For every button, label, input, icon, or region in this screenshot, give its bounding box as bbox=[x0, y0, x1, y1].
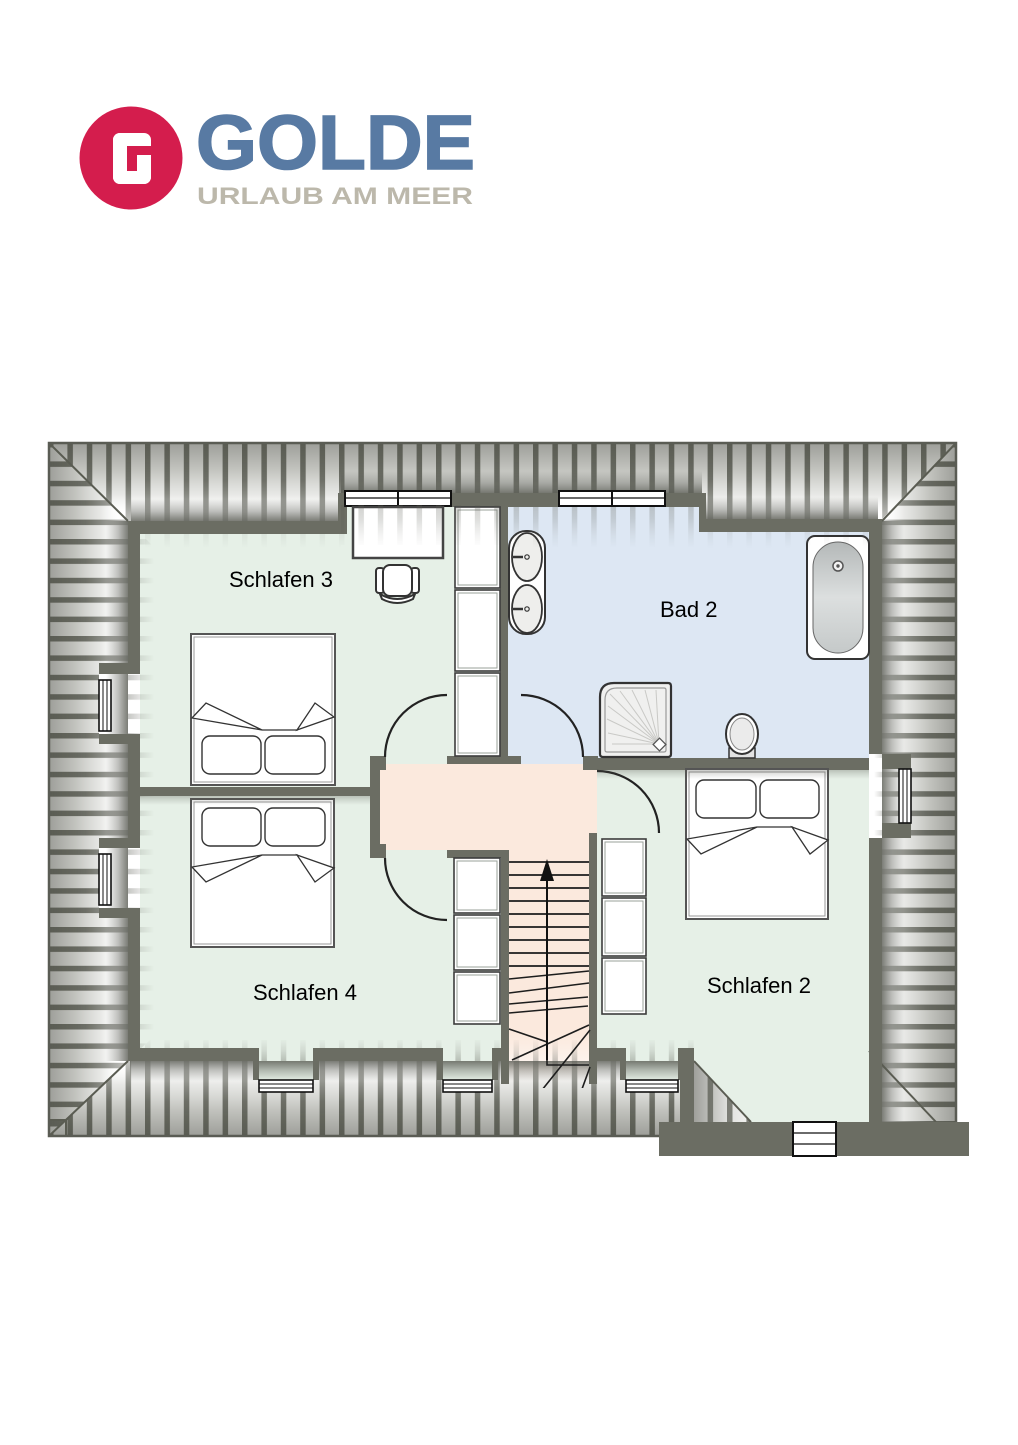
svg-text:GOLDE: GOLDE bbox=[196, 100, 475, 186]
svg-text:Bad 2: Bad 2 bbox=[660, 597, 718, 622]
svg-text:Schlafen 4: Schlafen 4 bbox=[253, 980, 357, 1005]
svg-text:Schlafen 3: Schlafen 3 bbox=[229, 567, 333, 592]
svg-text:URLAUB AM MEER: URLAUB AM MEER bbox=[197, 183, 473, 210]
svg-text:Schlafen 2: Schlafen 2 bbox=[707, 973, 811, 998]
